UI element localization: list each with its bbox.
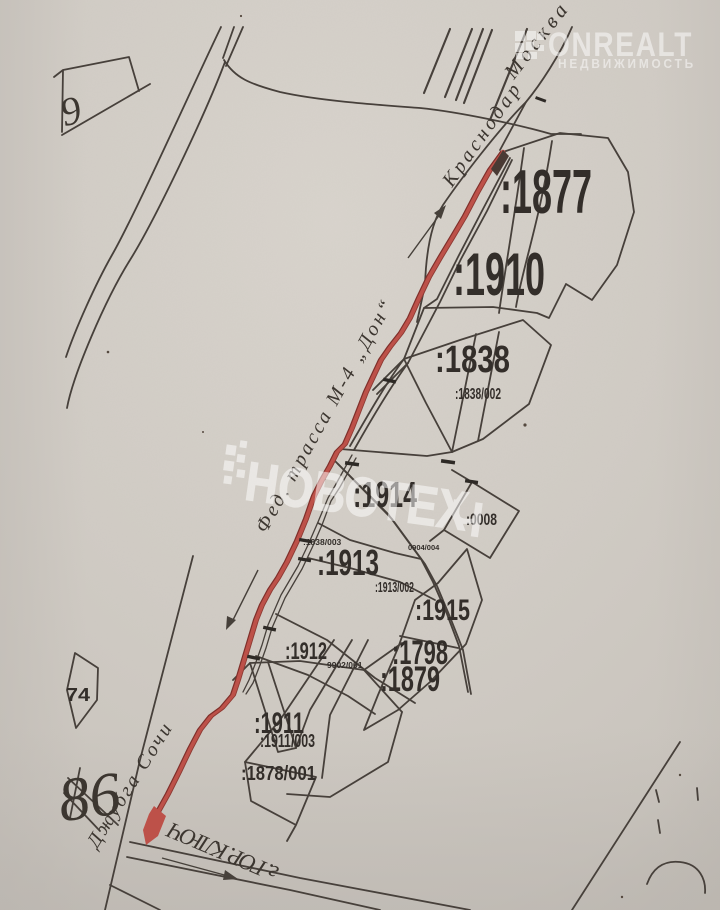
svg-text::1912: :1912 <box>285 638 327 665</box>
svg-text::1877: :1877 <box>500 158 592 227</box>
svg-text:9902/001: 9902/001 <box>327 660 363 670</box>
svg-text::1878/001: :1878/001 <box>241 763 316 785</box>
svg-text:74: 74 <box>66 685 90 705</box>
svg-text::1838: :1838 <box>435 339 510 381</box>
svg-text::1838/002: :1838/002 <box>455 386 501 403</box>
svg-text::1838/003: :1838/003 <box>303 537 342 547</box>
svg-text:86: 86 <box>54 759 125 835</box>
svg-text::1911/003: :1911/003 <box>260 731 315 751</box>
svg-text:0904/004: 0904/004 <box>408 543 440 552</box>
svg-text::1913/002: :1913/002 <box>375 579 414 596</box>
svg-text::1913: :1913 <box>317 542 379 583</box>
svg-text::1879: :1879 <box>380 660 440 699</box>
svg-text::1910: :1910 <box>453 241 545 308</box>
svg-text:НЕДВИЖИМОСТЬ: НЕДВИЖИМОСТЬ <box>558 57 696 71</box>
svg-text::1915: :1915 <box>415 594 470 627</box>
